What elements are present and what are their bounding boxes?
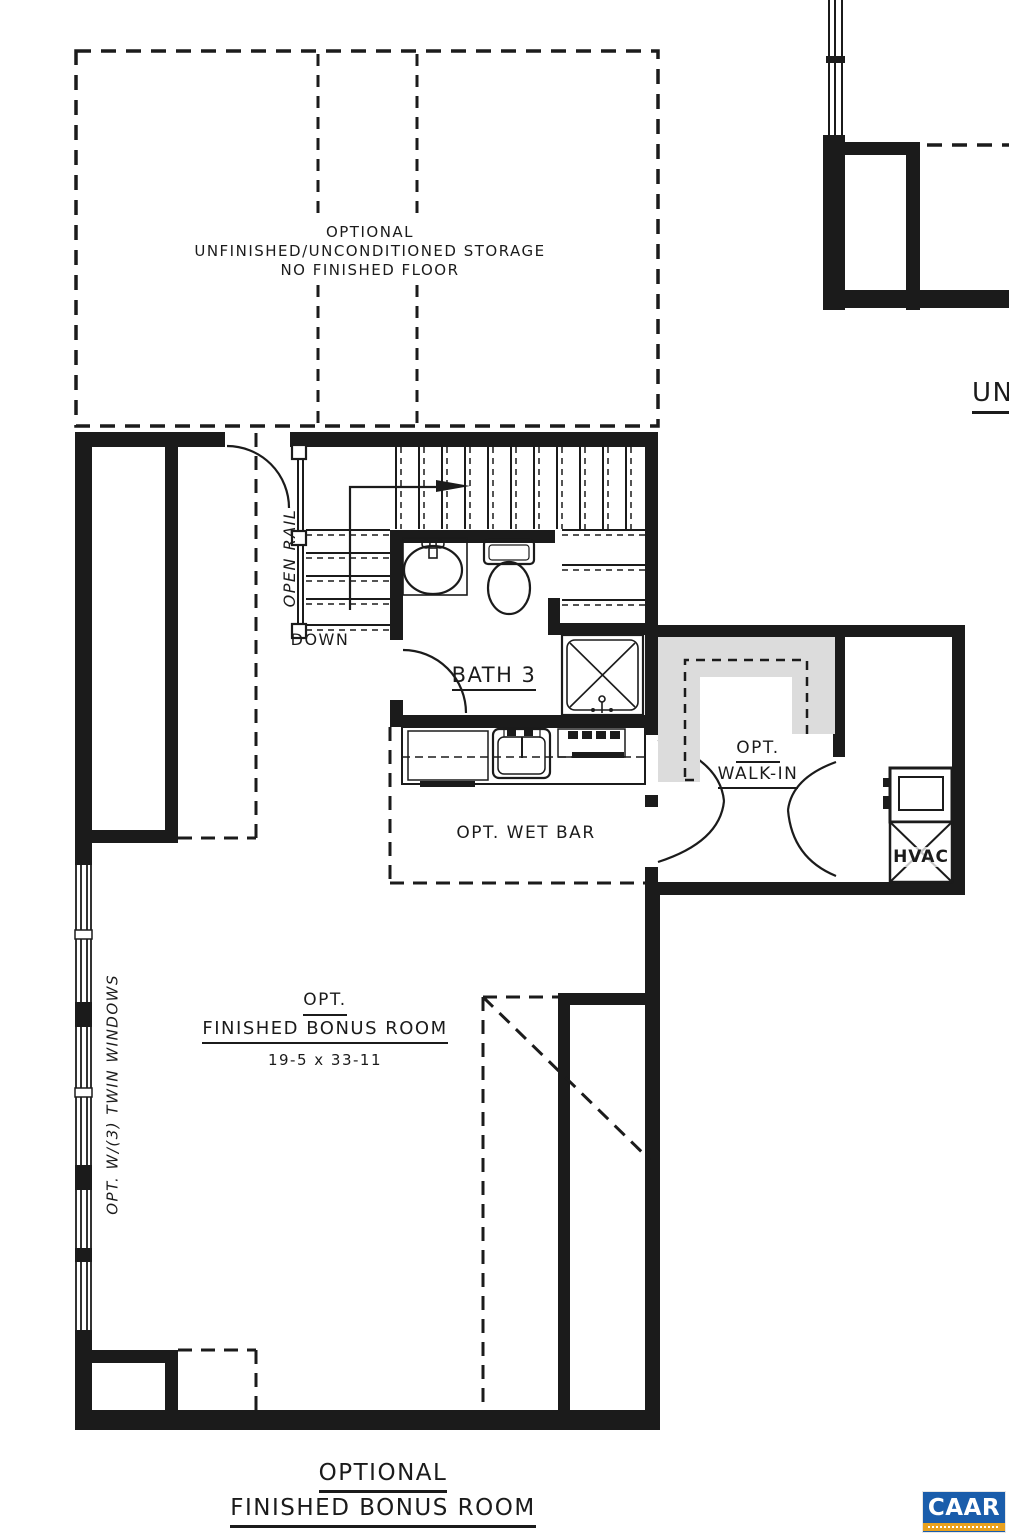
caar-logo: CAAR bbox=[923, 1492, 1005, 1532]
storage-label-line3: NO FINISHED FLOOR bbox=[160, 261, 580, 280]
wet-bar-label: OPT. WET BAR bbox=[426, 823, 626, 844]
storage-label-line1: OPTIONAL bbox=[160, 223, 580, 242]
bonus-room-label: OPT. FINISHED BONUS ROOM 19-5 x 33-11 bbox=[160, 989, 490, 1071]
hvac-label: HVAC bbox=[890, 847, 952, 868]
wet-bar-counter bbox=[402, 727, 645, 787]
window-wall-left bbox=[75, 862, 92, 1330]
caar-logo-text: CAAR bbox=[923, 1493, 1005, 1523]
walk-in-room-label: OPT. WALK-IN bbox=[688, 737, 828, 789]
twin-windows-label: OPT. W/(3) TWIN WINDOWS bbox=[104, 953, 123, 1235]
open-rail-label: OPEN RAIL bbox=[280, 493, 300, 623]
stair-direction-arrow bbox=[350, 480, 470, 610]
down-label: DOWN bbox=[288, 630, 352, 650]
shower bbox=[562, 635, 643, 715]
adjacent-plan-partial-title: UN bbox=[972, 377, 1009, 414]
storage-room-label: OPTIONAL UNFINISHED/UNCONDITIONED STORAG… bbox=[156, 222, 584, 280]
adjacent-structure bbox=[823, 0, 1009, 310]
optional-dashed-lines bbox=[178, 433, 650, 1412]
bath-vanity-sink bbox=[403, 538, 467, 595]
floor-plan: OPTIONAL UNFINISHED/UNCONDITIONED STORAG… bbox=[0, 0, 1009, 1536]
exterior-walls bbox=[75, 432, 965, 1430]
bath-room-label: BATH 3 bbox=[434, 662, 554, 691]
interior-walls bbox=[92, 432, 845, 1412]
plan-title: OPTIONAL FINISHED BONUS ROOM bbox=[203, 1458, 563, 1528]
caar-logo-tagline-bar bbox=[923, 1523, 1005, 1531]
toilet bbox=[484, 540, 534, 614]
storage-label-line2: UNFINISHED/UNCONDITIONED STORAGE bbox=[160, 242, 580, 261]
